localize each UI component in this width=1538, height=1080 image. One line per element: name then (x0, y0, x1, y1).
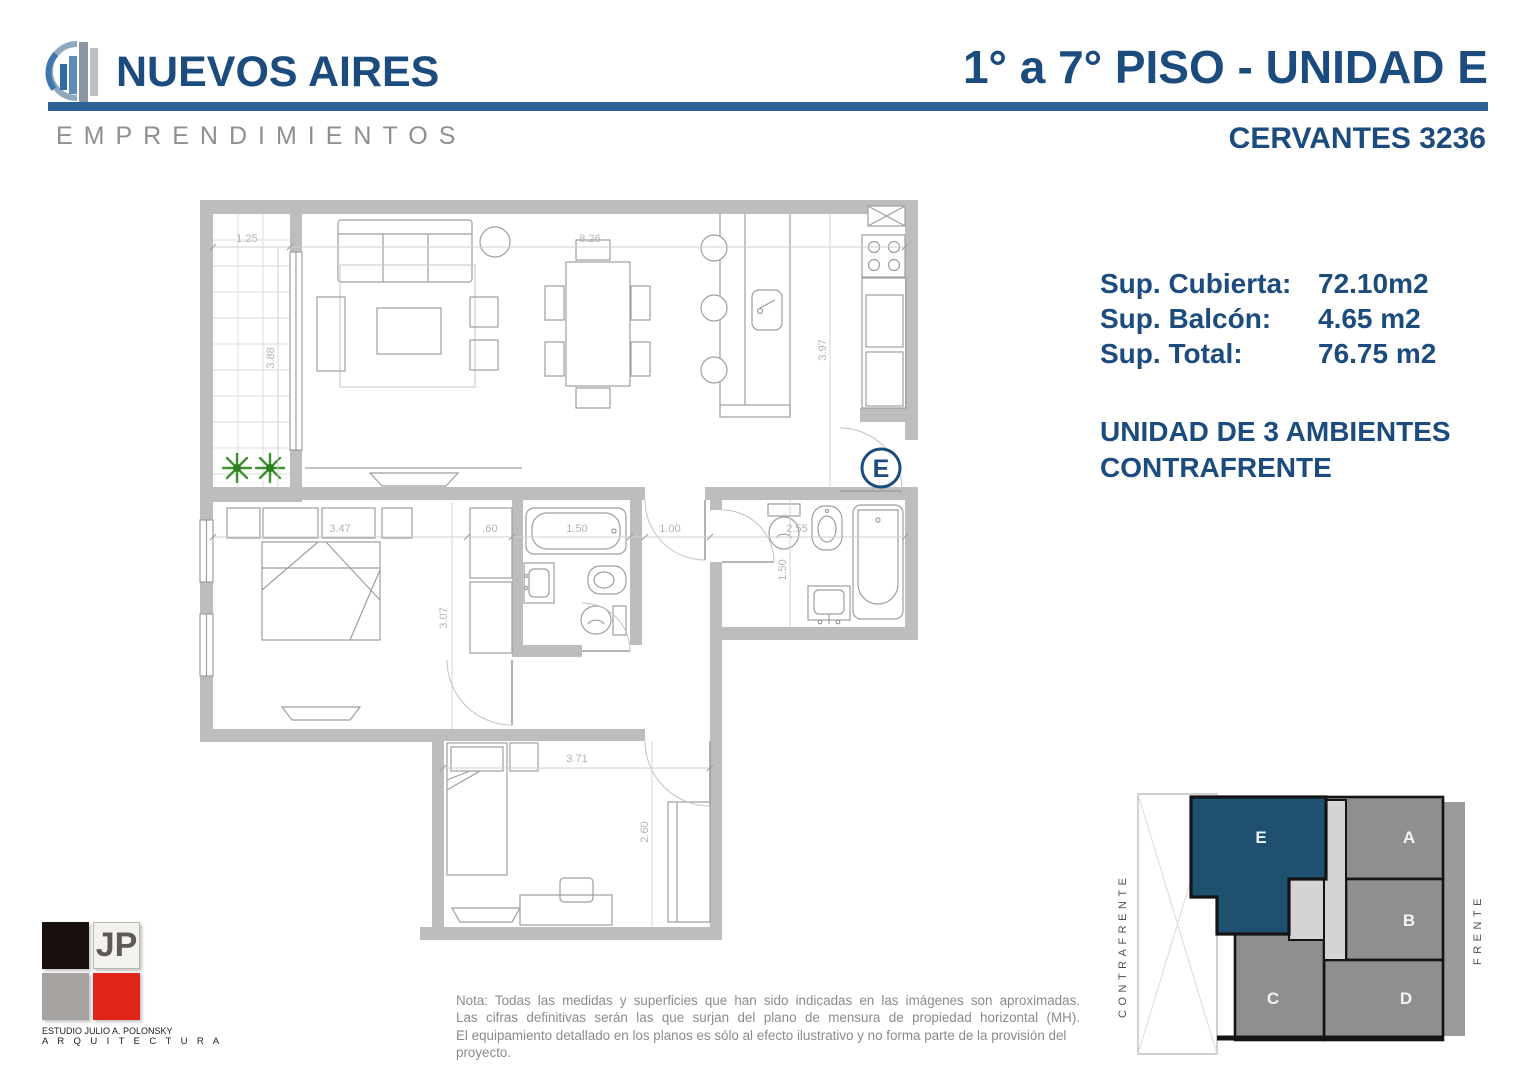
key-plan: E A B D C (1113, 782, 1513, 1074)
svg-text:8.26: 8.26 (579, 233, 600, 245)
unit-description-line2: CONTRAFRENTE (1100, 450, 1451, 486)
living-room-furniture (305, 220, 522, 486)
svg-text:2.60: 2.60 (639, 821, 651, 842)
kitchen-appliances (862, 206, 906, 408)
summary-row: Sup. Cubierta: 72.10m2 (1100, 266, 1436, 301)
svg-text:1.50: 1.50 (777, 559, 789, 580)
surface-summary: Sup. Cubierta: 72.10m2 Sup. Balcón: 4.65… (1100, 266, 1436, 371)
legal-note: Nota: Todas las medidas y superficies qu… (456, 992, 1080, 1062)
unit-description-line1: UNIDAD DE 3 AMBIENTES (1100, 414, 1451, 450)
brand-name: NUEVOS AIRES (116, 48, 439, 97)
floor-plan: 1.25 8.26 3.88 3.97 3.47 .60 1.50 1.00 2… (190, 190, 935, 965)
dimension-lines (210, 214, 908, 927)
svg-text:3.71: 3.71 (566, 753, 587, 765)
note-line1: Nota: Todas las medidas y superficies qu… (456, 992, 1080, 1009)
summary-row: Sup. Balcón: 4.65 m2 (1100, 301, 1436, 336)
note-line3: El equipamiento detallado en los planos … (456, 1027, 1080, 1062)
svg-text:D: D (1400, 989, 1412, 1008)
page-title: 1° a 7° PISO - UNIDAD E (963, 40, 1488, 94)
summary-row: Sup. Total: 76.75 m2 (1100, 336, 1436, 371)
unit-entry-badge: E (862, 449, 900, 487)
svg-text:3.88: 3.88 (265, 347, 277, 368)
bedroom2-furniture (447, 743, 710, 925)
logo-square-black (42, 922, 89, 969)
brochure-page: { "header": { "brand": "NUEVOS AIRES", "… (0, 0, 1538, 1080)
logo-square-gray (42, 973, 89, 1020)
header-rule (48, 102, 1488, 111)
balcony-tiles (213, 214, 290, 488)
keyplan-right-label: FRENTE (1472, 894, 1484, 965)
svg-text:E: E (873, 455, 890, 483)
walls (200, 200, 918, 940)
page-subtitle: CERVANTES 3236 (1229, 122, 1486, 156)
summary-value: 4.65 m2 (1318, 301, 1421, 336)
svg-text:A: A (1403, 828, 1415, 847)
svg-text:C: C (1267, 989, 1279, 1008)
logo-square-initials: JP (93, 922, 140, 969)
svg-text:E: E (1255, 828, 1266, 847)
logo-square-red (93, 973, 140, 1020)
note-line2: Las cifras definitivas serán las que sur… (456, 1009, 1080, 1026)
unit-description: UNIDAD DE 3 AMBIENTES CONTRAFRENTE (1100, 414, 1451, 486)
summary-label: Sup. Total: (1100, 336, 1318, 371)
architect-name: ESTUDIO JULIO A. POLONSKY (42, 1026, 152, 1036)
summary-value: 72.10m2 (1318, 266, 1429, 301)
plant-icon (223, 454, 284, 482)
summary-label: Sup. Balcón: (1100, 301, 1318, 336)
architect-discipline: A R Q U I T E C T U R A (42, 1036, 152, 1047)
svg-text:2.55: 2.55 (786, 523, 807, 535)
svg-text:B: B (1403, 911, 1415, 930)
svg-text:3.07: 3.07 (438, 607, 450, 628)
keyplan-front-balconies (1443, 802, 1465, 1036)
keyplan-left-label: CONTRAFRENTE (1117, 874, 1129, 1018)
architect-logo: JP ESTUDIO JULIO A. POLONSKY A R Q U I T… (42, 922, 152, 1047)
svg-text:3.97: 3.97 (817, 339, 829, 360)
svg-text:1.00: 1.00 (659, 523, 680, 535)
svg-text:1.50: 1.50 (566, 523, 587, 535)
architect-logo-grid: JP (42, 922, 152, 1020)
brand-subtitle: EMPRENDIMIENTOS (56, 122, 466, 151)
svg-text:3.47: 3.47 (329, 523, 350, 535)
svg-text:.60: .60 (482, 523, 497, 535)
svg-text:1.25: 1.25 (236, 233, 257, 245)
summary-label: Sup. Cubierta: (1100, 266, 1318, 301)
summary-value: 76.75 m2 (1318, 336, 1436, 371)
windows (200, 252, 302, 676)
bedroom1-furniture (227, 508, 512, 720)
